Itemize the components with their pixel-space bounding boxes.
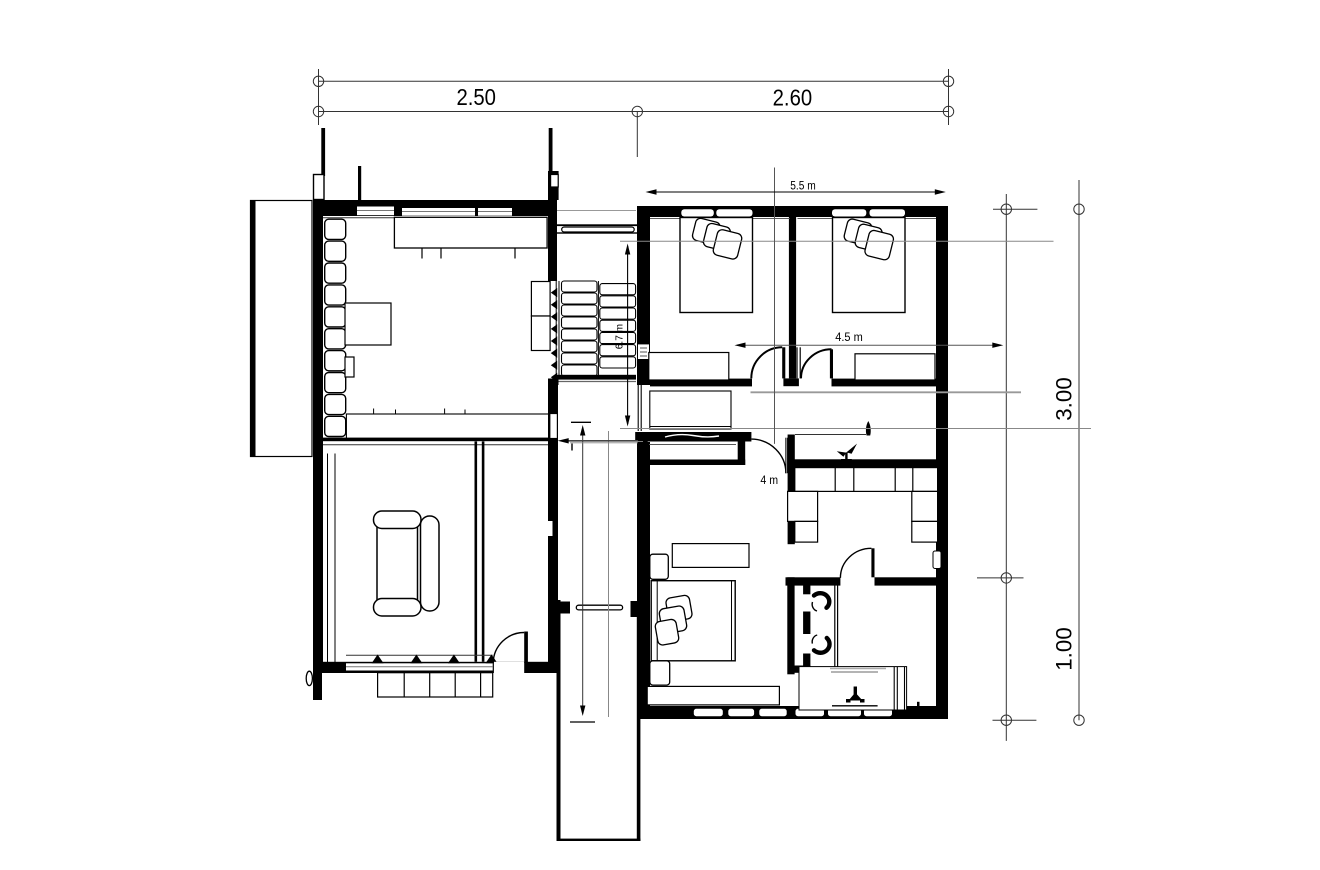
svg-text:2.60: 2.60 — [773, 85, 813, 111]
svg-text:4.5 m: 4.5 m — [835, 330, 863, 344]
svg-text:1.00: 1.00 — [1052, 627, 1077, 671]
svg-text:3.00: 3.00 — [1052, 377, 1077, 421]
svg-text:5.5 m: 5.5 m — [790, 181, 816, 193]
svg-text:2.50: 2.50 — [456, 84, 496, 110]
svg-text:4 m: 4 m — [760, 473, 778, 487]
svg-text:6.7 m: 6.7 m — [613, 324, 625, 350]
